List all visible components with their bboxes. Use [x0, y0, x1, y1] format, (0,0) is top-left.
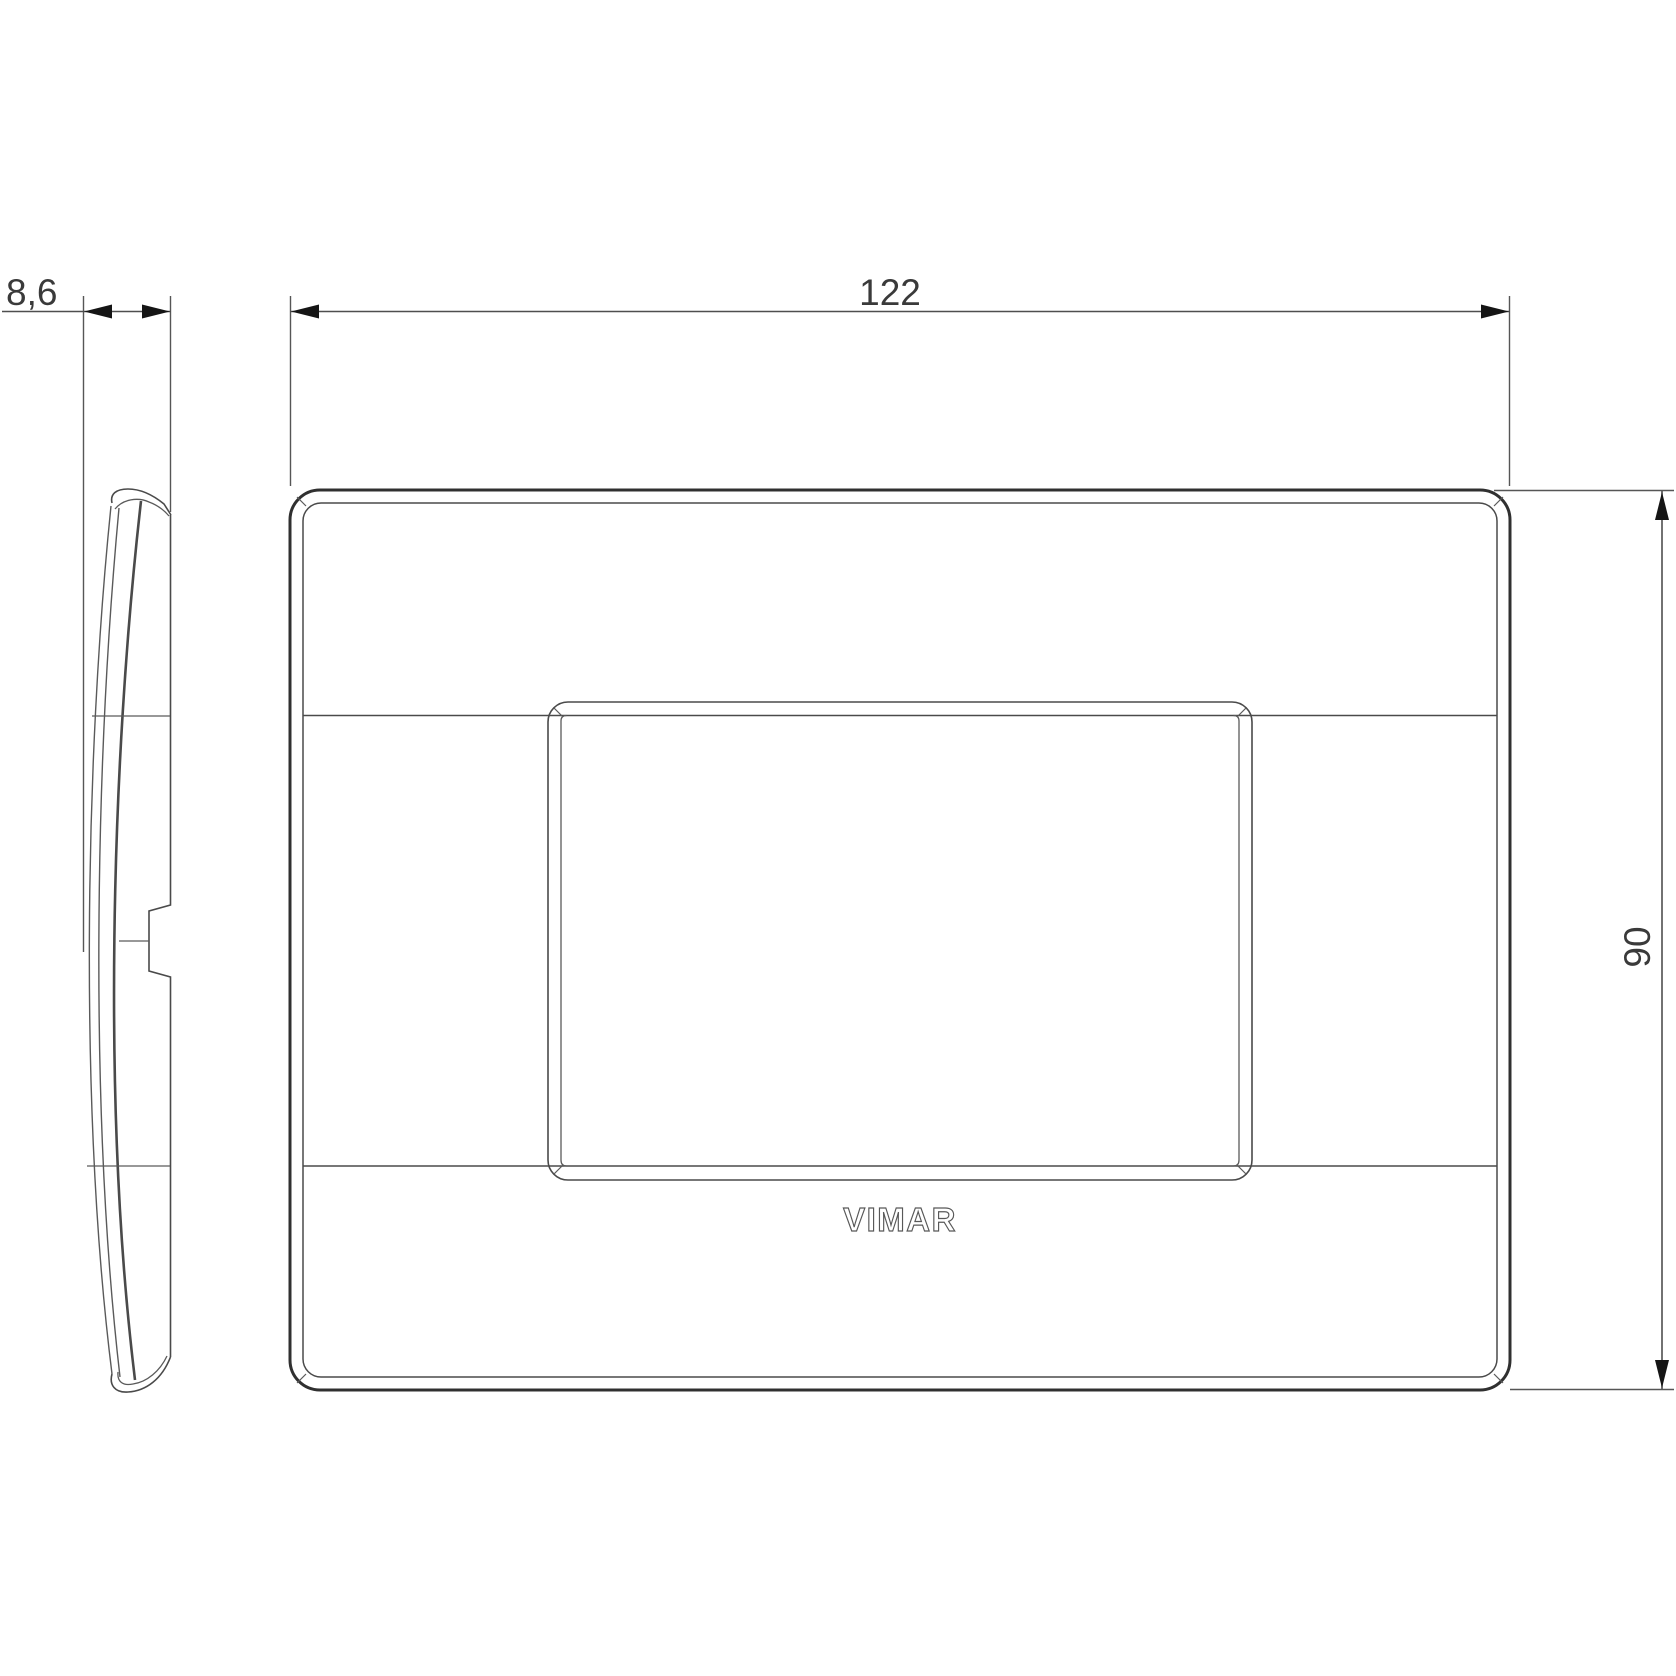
arrowhead-right-icon — [1481, 305, 1509, 319]
dimension-thickness: 8,6 — [2, 272, 171, 952]
wall-plate-dimension-drawing: VIMAR 8,6 122 90 — [0, 0, 1676, 1676]
module-opening-outer — [548, 702, 1252, 1180]
plate-corner-ticks — [297, 497, 1503, 1383]
arrowhead-down-icon — [1655, 1360, 1669, 1388]
brand-logo: VIMAR — [843, 1201, 957, 1238]
plate-outline-outer — [290, 490, 1510, 1390]
dimension-width-label: 122 — [859, 272, 921, 313]
arrowhead-right-icon — [142, 305, 170, 319]
technical-drawing-canvas: VIMAR 8,6 122 90 — [0, 0, 1676, 1676]
front-view: VIMAR — [290, 490, 1510, 1390]
arrowhead-up-icon — [1655, 492, 1669, 520]
side-bottom-cap-inner — [118, 1356, 167, 1385]
plate-outline-inner — [303, 503, 1497, 1377]
arrowhead-left-icon — [84, 305, 112, 319]
dimension-thickness-label: 8,6 — [6, 272, 57, 313]
module-corner-ticks — [554, 708, 1246, 1174]
side-front-curve-middle — [99, 508, 120, 1377]
side-view — [87, 489, 171, 1392]
module-opening-inner — [561, 716, 1239, 1167]
arrowhead-left-icon — [291, 305, 319, 319]
dimension-height-label: 90 — [1617, 926, 1658, 967]
dimension-width: 122 — [290, 272, 1510, 486]
side-back-edge — [149, 515, 171, 1357]
dimension-height: 90 — [1494, 491, 1674, 1390]
